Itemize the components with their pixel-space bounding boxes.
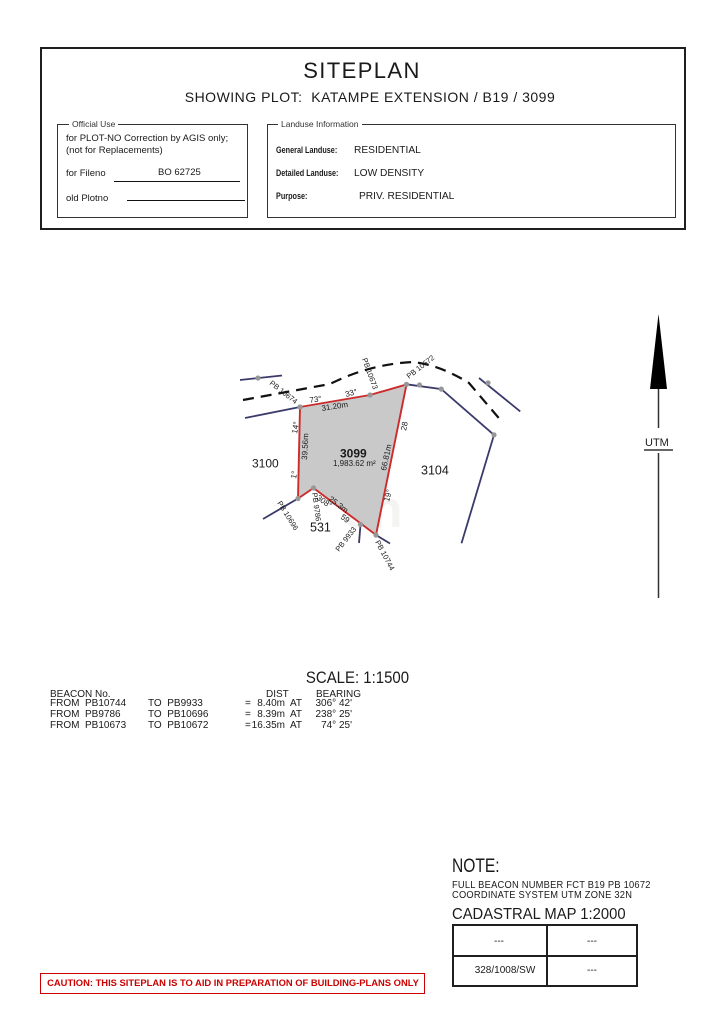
svg-text:3104: 3104 [421, 464, 449, 478]
svg-text:39.56m: 39.56m [300, 433, 310, 460]
svg-text:1,983.62 m²: 1,983.62 m² [333, 459, 376, 468]
svg-text:PB 9933: PB 9933 [333, 525, 358, 553]
svg-text:3100: 3100 [252, 457, 279, 471]
svg-text:PB 10674: PB 10674 [268, 378, 300, 405]
svg-text:531: 531 [310, 521, 331, 535]
svg-text:PB 10673: PB 10673 [360, 357, 380, 391]
svg-text:UTM: UTM [645, 437, 669, 449]
svg-text:19°: 19° [382, 488, 394, 502]
svg-text:PB 10744: PB 10744 [373, 539, 396, 572]
svg-text:1°: 1° [289, 470, 299, 479]
svg-text:28: 28 [399, 420, 410, 431]
svg-text:PB 10672: PB 10672 [405, 353, 437, 380]
